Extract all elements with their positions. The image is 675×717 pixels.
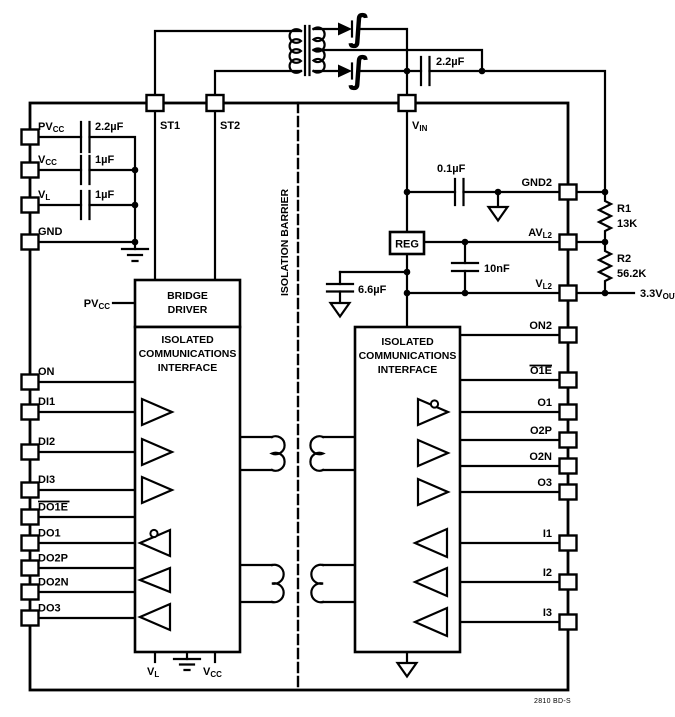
- wire-coupler-ul: [240, 437, 272, 470]
- cap-gnd2-icon: [455, 179, 464, 205]
- label-r1-name: R1: [617, 203, 631, 215]
- label-r2-value: 56.2K: [617, 268, 646, 280]
- resistor-r2: [599, 242, 611, 293]
- label-gnd2: GND2: [521, 177, 552, 189]
- label-do2p: DO2P: [38, 553, 68, 565]
- label-vin: VIN: [412, 120, 428, 133]
- bridge-driver-label: DRIVER: [168, 304, 208, 316]
- coupler-coil-icon: [311, 565, 323, 603]
- label-i1: I1: [543, 528, 552, 540]
- label-on: ON: [38, 366, 55, 378]
- left-interface-label: ISOLATED: [161, 334, 214, 346]
- label-bottom-vcc: VCC: [203, 666, 222, 679]
- block-diagram: ∫ ∫ ISOLATION BARRIER BRIDGE DRIVE: [0, 0, 675, 717]
- transformer: [290, 26, 325, 75]
- coupler-coil-icon: [310, 436, 323, 471]
- chassis-ground-icon: [489, 207, 508, 221]
- pin-on: [22, 375, 39, 390]
- pin-on2: [560, 328, 577, 343]
- pin-do2n: [22, 585, 39, 600]
- pin-o1e: [560, 373, 577, 388]
- pin-o1: [560, 405, 577, 420]
- label-avl2: AVL2: [528, 227, 552, 240]
- wire-st1: [155, 31, 301, 95]
- label-vl2: VL2: [535, 278, 552, 291]
- transformer-core: [305, 26, 310, 75]
- bridge-driver-label: BRIDGE: [167, 290, 208, 302]
- pin-vl2: [560, 286, 577, 301]
- label-di1: DI1: [38, 396, 55, 408]
- label-di2: DI2: [38, 436, 55, 448]
- label-pvcc: PVCC: [38, 121, 64, 134]
- earth-ground-icon: [122, 249, 148, 261]
- cap-vcc-icon: [81, 156, 90, 184]
- wire-st2: [215, 71, 301, 95]
- wire-coupler-ur: [323, 437, 355, 470]
- pin-vin: [399, 95, 416, 111]
- pin-do2p: [22, 561, 39, 576]
- chassis-ground-icon: [398, 663, 417, 677]
- pin-i2: [560, 575, 577, 590]
- pin-avl2: [560, 235, 577, 250]
- label-gnd: GND: [38, 226, 63, 238]
- resistor-r1: [599, 192, 611, 242]
- label-i3: I3: [543, 607, 552, 619]
- pin-i1: [560, 536, 577, 551]
- label-o2n: O2N: [529, 451, 552, 463]
- pin-vl: [22, 198, 39, 213]
- cap-10nf-icon: [452, 263, 478, 271]
- coupler-coil-icon: [272, 436, 285, 471]
- label-do1: DO1: [38, 528, 61, 540]
- pin-o2p: [560, 433, 577, 448]
- label-o3: O3: [537, 477, 552, 489]
- pin-di3: [22, 483, 39, 498]
- label-r2-name: R2: [617, 253, 631, 265]
- label-o1: O1: [537, 397, 552, 409]
- label-do3: DO3: [38, 603, 61, 615]
- label-cap-10nf: 10nF: [484, 263, 510, 275]
- pin-o2n: [560, 459, 577, 474]
- label-do2n: DO2N: [38, 577, 69, 589]
- label-cap-66uf: 6.6µF: [358, 284, 387, 296]
- pin-vcc: [22, 163, 39, 178]
- earth-ground-icon: [174, 659, 200, 670]
- pin-gnd2: [560, 185, 577, 200]
- pin-di1: [22, 405, 39, 420]
- cap-top-icon: [421, 57, 430, 85]
- left-interface-block: [135, 327, 240, 652]
- label-vcc: VCC: [38, 154, 57, 167]
- rectifier-squiggle-icon: ∫: [348, 8, 370, 49]
- label-st2: ST2: [220, 120, 240, 132]
- label-st1: ST1: [160, 120, 180, 132]
- wire-coupler-ll: [240, 565, 272, 602]
- pin-do1e: [22, 510, 39, 525]
- schematic-canvas: ∫ ∫ ISOLATION BARRIER BRIDGE DRIVE: [0, 0, 675, 717]
- label-pvcc-feed: PVCC: [84, 298, 110, 311]
- left-interface-label: INTERFACE: [158, 362, 218, 374]
- label-bottom-vl: VL: [147, 666, 159, 679]
- chassis-ground-icon: [331, 303, 350, 317]
- left-interface-label: COMMUNICATIONS: [139, 348, 237, 360]
- cap-66uf-icon: [327, 284, 353, 292]
- pin-do1: [22, 536, 39, 551]
- label-i2: I2: [543, 567, 552, 579]
- regulator-label: REG: [395, 239, 419, 251]
- label-cap-pvcc: 2.2µF: [95, 121, 124, 133]
- label-do1e: DO1E: [38, 502, 68, 514]
- wire-right-rail: [482, 71, 605, 192]
- pin-st2: [207, 95, 224, 111]
- pin-o3: [560, 485, 577, 500]
- cap-vl-icon: [81, 191, 90, 219]
- label-di3: DI3: [38, 474, 55, 486]
- isolation-barrier-label: ISOLATION BARRIER: [279, 188, 291, 296]
- enable-bubble-icon: [431, 400, 438, 407]
- label-on2: ON2: [529, 320, 552, 332]
- label-cap-vcc: 1µF: [95, 154, 114, 166]
- pin-di2: [22, 445, 39, 460]
- pin-pvcc: [22, 130, 39, 145]
- pin-gnd: [22, 235, 39, 250]
- figure-tag: 2810 BD-S: [534, 698, 571, 705]
- rectifier-top: ∫: [338, 8, 370, 49]
- right-interface-label: ISOLATED: [381, 336, 434, 348]
- label-o1e: O1E: [530, 365, 552, 377]
- cap-pvcc-icon: [81, 122, 90, 152]
- pin-st1: [147, 95, 164, 111]
- wire-coupler-lr: [323, 565, 355, 602]
- label-r1-value: 13K: [617, 218, 637, 230]
- pin-do3: [22, 611, 39, 626]
- rectifier-bottom: ∫: [338, 50, 370, 91]
- label-o2p: O2P: [530, 425, 552, 437]
- pin-labels: ST1 ST2 VIN PVCC VCC VL GND ON DI1 DI2 D…: [38, 120, 553, 619]
- label-vl: VL: [38, 189, 50, 202]
- transformer-primary-coil: [290, 29, 301, 73]
- rectifier-squiggle-icon: ∫: [348, 50, 370, 91]
- coupler-coil-icon: [272, 565, 284, 603]
- pin-i3: [560, 615, 577, 630]
- right-interface-label: COMMUNICATIONS: [359, 350, 457, 362]
- right-interface-label: INTERFACE: [378, 364, 438, 376]
- label-cap-gnd2: 0.1µF: [437, 163, 466, 175]
- label-cap-top: 2.2µF: [436, 56, 465, 68]
- label-vout: 3.3VOUT: [640, 288, 675, 301]
- label-cap-vl: 1µF: [95, 189, 114, 201]
- enable-bubble-icon: [150, 530, 157, 537]
